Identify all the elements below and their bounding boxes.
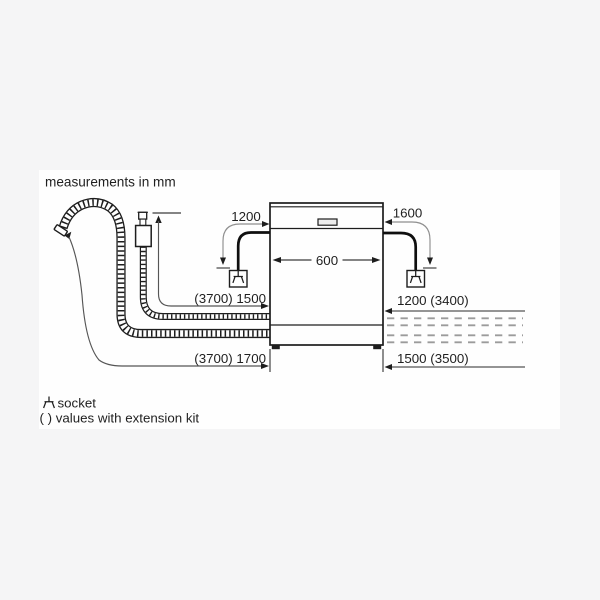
width-label: 600	[316, 253, 338, 268]
cable-right-label: 1600	[393, 206, 423, 221]
supply-hose-label: (3700) 1500	[194, 291, 266, 306]
left-foot	[272, 345, 280, 349]
right-foot	[373, 345, 381, 349]
control-panel-display	[318, 219, 337, 225]
dishwasher	[270, 203, 383, 349]
units-note: measurements in mm	[45, 175, 176, 190]
legend-extension-note: ( ) values with extension kit	[40, 411, 200, 426]
right-top-label: 1200 (3400)	[397, 293, 469, 308]
socket-icon	[230, 271, 248, 288]
socket-icon	[407, 271, 425, 288]
legend-socket-label: socket	[58, 396, 97, 411]
cable-left-label: 1200	[231, 209, 261, 224]
drain-hose-label: (3700) 1700	[194, 351, 266, 366]
right-bottom-label: 1500 (3500)	[397, 351, 469, 366]
installation-diagram: measurements in mm 600	[0, 0, 600, 600]
